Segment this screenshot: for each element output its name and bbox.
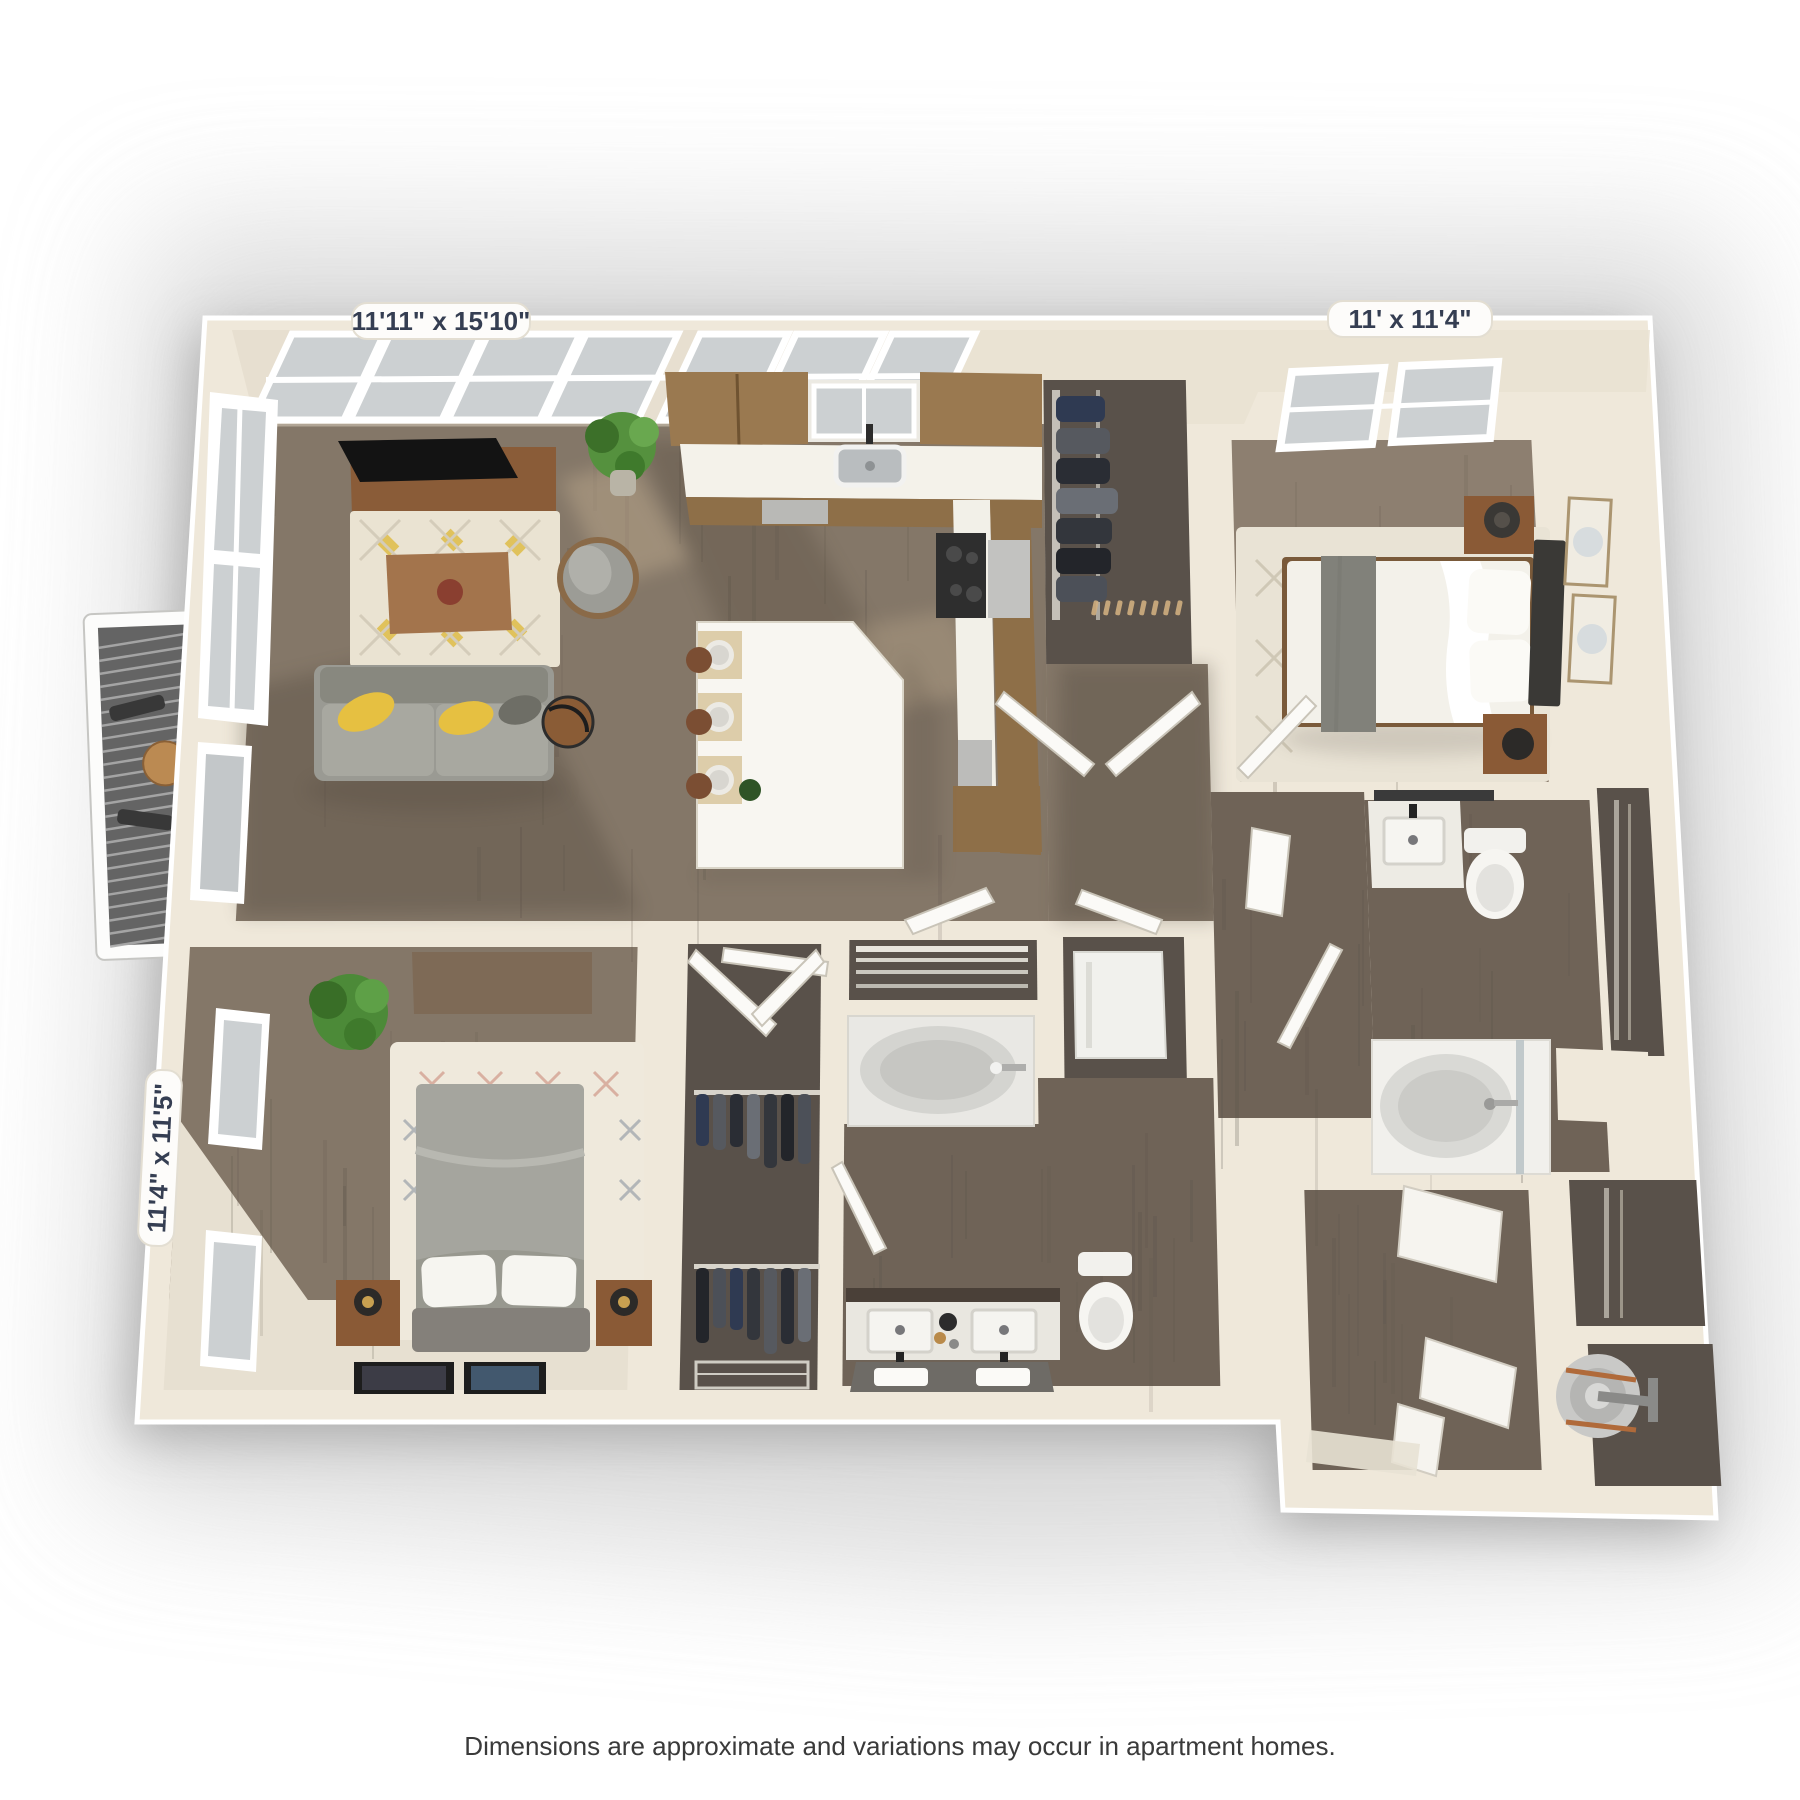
svg-text:Dimensions are approximate and: Dimensions are approximate and variation… [464, 1731, 1335, 1761]
svg-text:11' x 11'4": 11' x 11'4" [1348, 304, 1471, 334]
svg-text:11'11" x 15'10": 11'11" x 15'10" [352, 306, 531, 336]
